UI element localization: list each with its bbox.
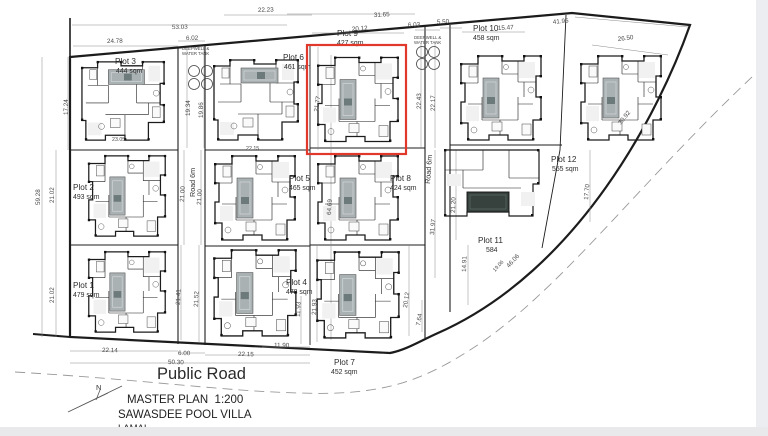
plot-name-label: Plot 2 xyxy=(73,183,94,192)
plot-area-label: 424 sqm xyxy=(390,185,417,192)
dimension-label: 22.14 xyxy=(102,347,118,354)
master-plan-title: MASTER PLAN 1:200 xyxy=(127,394,243,406)
dimension-label: 14.91 xyxy=(461,256,469,272)
dimension-label: 64.69 xyxy=(326,199,334,216)
public-road-label: Public Road xyxy=(157,365,246,383)
dimension-label: 46.06 xyxy=(505,253,521,270)
plot-name-label: Plot 5 xyxy=(289,174,310,183)
villa-plot-9 xyxy=(317,57,399,142)
villa-plot-6 xyxy=(213,59,299,140)
dimension-label: 21.20 xyxy=(450,197,458,213)
plot-name-label: Plot 11 xyxy=(478,236,503,245)
dimension-label: 7.64 xyxy=(415,313,424,327)
dimension-label: 19.06 xyxy=(492,259,505,273)
plot-area-label: 555 sqm xyxy=(552,166,579,173)
dimension-label: 22.15 xyxy=(246,146,259,152)
plot-area-label: 479 sqm xyxy=(73,292,100,299)
plot-area-label: 493 sqm xyxy=(73,194,100,201)
dimension-label: 19.86 xyxy=(198,102,205,118)
dimension-label: 17.70 xyxy=(583,183,591,200)
dimension-label: 22.43 xyxy=(416,93,423,109)
dimension-label: 21.00 xyxy=(196,189,204,206)
plot-area-label: 465 sqm xyxy=(289,185,316,192)
villa-plot-2 xyxy=(88,155,166,237)
dimension-label: 21.02 xyxy=(49,287,56,303)
project-name: SAWASDEE POOL VILLA xyxy=(118,409,252,421)
dimension-label: 21.02 xyxy=(49,187,56,203)
plot-name-label: Plot 1 xyxy=(73,281,94,290)
dimension-label: 17.24 xyxy=(63,99,70,115)
dimension-label: 31.97 xyxy=(429,218,437,235)
villa-plot-10 xyxy=(460,55,542,140)
dimension-label: 21.93 xyxy=(311,299,319,315)
villa-plot-11 xyxy=(444,149,539,216)
deepwell-right: DEEPWELL & WATER TANK xyxy=(414,35,441,70)
villa-plot-1 xyxy=(88,251,166,333)
villa-plot-7 xyxy=(316,251,400,338)
dimension-label: 22.17 xyxy=(430,95,437,111)
plot-area-label: 584 xyxy=(486,247,498,254)
dimension-label: 30.92 xyxy=(617,109,633,126)
dimension-label: 20.12 xyxy=(402,291,411,308)
site-plan-canvas: DEEPWELL & WATER TANK DEEPWELL & WATER T… xyxy=(0,0,768,436)
dimension-label: 21.41 xyxy=(175,289,183,305)
road-label: Road 6m xyxy=(188,168,197,197)
dimension-label: 6.03 xyxy=(408,21,421,29)
villa-plot-12 xyxy=(580,55,662,140)
dimension-label: 26.50 xyxy=(617,34,634,43)
dimension-label: 11.93 xyxy=(295,301,303,317)
dimension-label: 53.03 xyxy=(172,24,188,31)
dimension-label: 5.50 xyxy=(437,18,450,26)
dimension-label: 21.77 xyxy=(313,95,322,112)
dimension-label: 41.95 xyxy=(552,17,569,26)
plot-area-label: 444 sqm xyxy=(116,68,143,75)
plot-name-label: Plot 3 xyxy=(115,57,136,66)
plot-name-label: Plot 10 xyxy=(473,24,499,33)
water-tank-circles xyxy=(417,47,440,70)
plot-area-label: 478 sqm xyxy=(286,289,313,296)
deepwell-label-line2: WATER TANK xyxy=(414,40,441,45)
villa-plot-8 xyxy=(317,155,399,240)
plot-name-label: Plot 8 xyxy=(390,174,411,183)
plot-area-label: 452 sqm xyxy=(331,369,358,376)
right-edge-strip xyxy=(756,0,768,436)
dimension-label: 6.02 xyxy=(186,35,199,42)
water-tank-circles xyxy=(189,66,213,90)
dimension-label: 23.05 xyxy=(112,137,125,143)
north-arrow-label: N xyxy=(96,383,101,392)
plot-name-label: Plot 9 xyxy=(337,29,358,38)
plot-area-label: 458 sqm xyxy=(473,35,500,42)
dimension-label: 31.65 xyxy=(374,11,391,19)
deepwell-label-line2: WATER TANK xyxy=(182,51,209,56)
plot-name-label: Plot 7 xyxy=(334,358,355,367)
dimension-label: 21.52 xyxy=(193,291,201,307)
plot-name-label: Plot 4 xyxy=(286,278,307,287)
villa-plot-4 xyxy=(213,249,297,336)
dimension-label: 22.15 xyxy=(238,351,254,358)
villa-plans xyxy=(81,55,662,338)
plot-name-label: Plot 6 xyxy=(283,53,304,62)
dimension-label: 19.34 xyxy=(185,100,192,116)
dimension-label: 22.23 xyxy=(258,6,274,14)
dimension-label: 11.90 xyxy=(274,342,290,349)
plot-name-label: Plot 12 xyxy=(551,155,577,164)
road-label: Road 6m xyxy=(423,154,434,184)
dimension-label: 6.00 xyxy=(178,350,191,357)
dimension-label: 21.00 xyxy=(179,186,187,203)
villa-plot-5 xyxy=(214,155,296,240)
dimension-label: 24.78 xyxy=(107,38,123,45)
bottom-edge-strip xyxy=(0,427,768,436)
dimension-label: 15.47 xyxy=(498,24,515,32)
north-arrow: N xyxy=(68,383,122,412)
dimension-label: 59.28 xyxy=(35,189,42,205)
deepwell-left: DEEPWELL & WATER TANK xyxy=(182,46,213,90)
master-plan-drawing: DEEPWELL & WATER TANK DEEPWELL & WATER T… xyxy=(0,0,768,436)
